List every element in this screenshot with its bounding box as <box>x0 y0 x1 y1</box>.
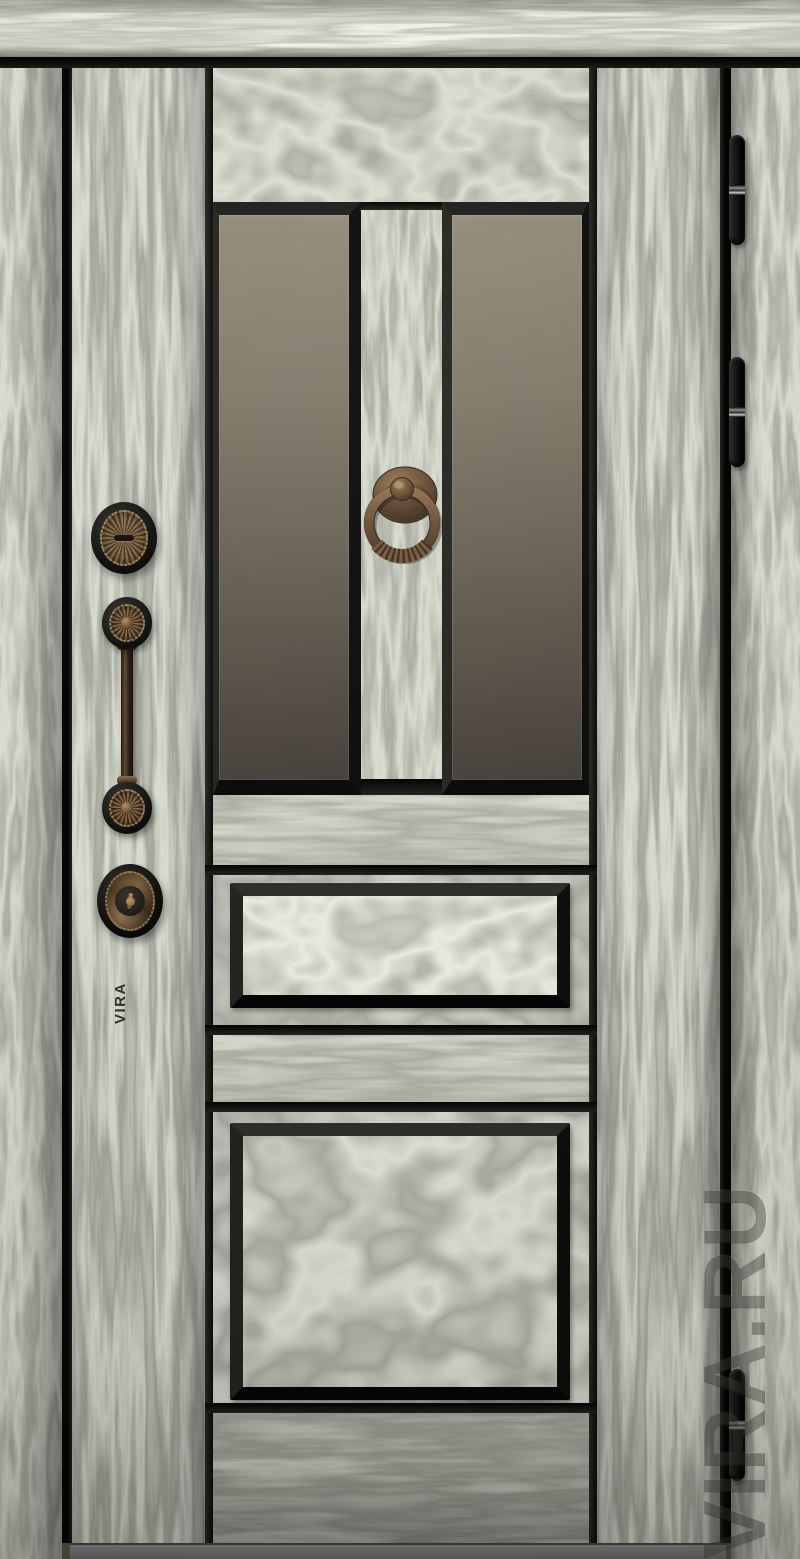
glass-pane-right <box>442 202 589 795</box>
door-knocker <box>360 462 444 564</box>
rosette-cap <box>121 617 133 629</box>
top-rail <box>213 68 589 202</box>
mid-panel-center <box>243 896 557 995</box>
handle-rosette-top <box>102 597 152 649</box>
hinge-bearing-band <box>729 185 745 195</box>
hinge-middle <box>729 357 745 467</box>
hinge-bearing-band <box>729 1420 745 1430</box>
mid-panel-top-groove <box>205 865 597 875</box>
door-product-photo: VIRA VIRA.RU <box>0 0 800 1559</box>
cross-rail <box>213 1035 589 1102</box>
threshold <box>70 1543 726 1559</box>
door-frame-right <box>731 68 800 1559</box>
cylinder-lock <box>97 864 163 938</box>
hinge-bearing-band <box>729 407 745 417</box>
knocker-pivot-knob <box>391 478 414 501</box>
key-pin <box>126 897 135 906</box>
frame-right-gap <box>720 68 731 1543</box>
bottom-panel-top-groove <box>205 1102 597 1112</box>
keyhole-escutcheon <box>91 502 157 574</box>
hinge-top <box>729 135 745 245</box>
door-frame-left <box>0 68 62 1559</box>
hinge-bottom <box>729 1369 745 1481</box>
glass-pane-left <box>213 202 361 795</box>
mid-panel-bottom-groove <box>205 1025 597 1035</box>
keyhole-slot <box>114 535 134 541</box>
stile-groove-left <box>205 68 213 1543</box>
lock-rail <box>213 795 589 865</box>
leaf-right-stile <box>597 68 720 1543</box>
stile-groove-right <box>589 68 597 1543</box>
frame-top-gap <box>0 57 800 68</box>
frame-left-gap <box>62 68 72 1543</box>
handle-rosette-bottom <box>102 782 152 834</box>
bottom-panel-center <box>243 1136 557 1387</box>
rosette-cap <box>121 802 133 814</box>
door-frame-top <box>0 0 800 57</box>
bottom-panel-bottom-groove <box>205 1403 597 1413</box>
bottom-rail <box>213 1413 589 1543</box>
mullion-bottom-groove <box>361 779 442 795</box>
